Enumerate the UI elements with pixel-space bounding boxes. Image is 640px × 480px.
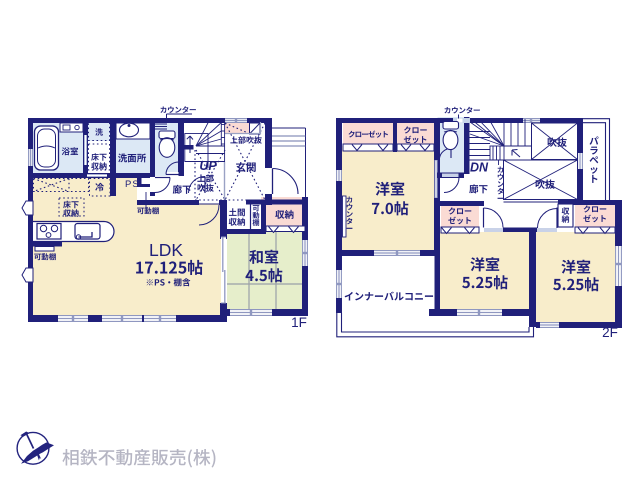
svg-text:UP: UP bbox=[199, 159, 217, 173]
svg-text:2F: 2F bbox=[602, 325, 618, 340]
svg-text:PS: PS bbox=[125, 179, 140, 190]
svg-text:LDK: LDK bbox=[149, 240, 183, 260]
svg-text:1F: 1F bbox=[291, 315, 307, 330]
svg-text:DN: DN bbox=[470, 161, 489, 175]
